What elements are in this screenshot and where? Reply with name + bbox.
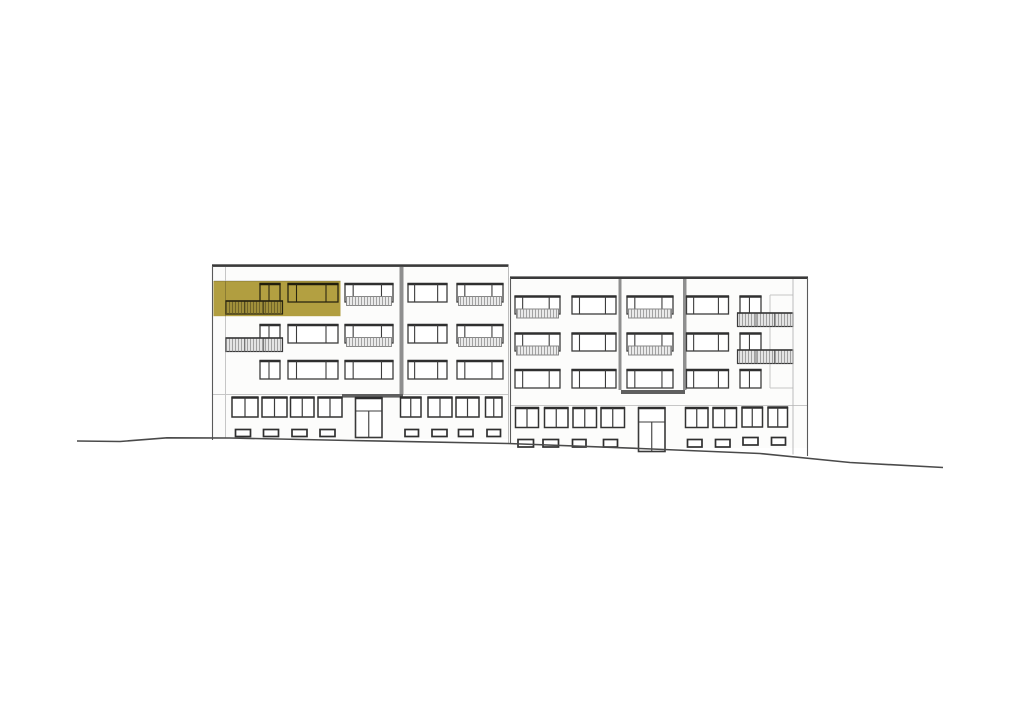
window [456,361,503,379]
stair-core-edge [619,279,622,390]
ground-floor-window [427,398,452,418]
ground-floor-window [455,398,479,418]
window [686,334,729,352]
basement-vent [716,440,731,448]
window [259,361,280,379]
window [514,370,560,388]
balcony [226,338,284,352]
ground-floor-window [400,398,422,418]
roof-line [510,276,808,279]
window [739,334,761,352]
ground-floor-window [261,398,287,418]
balcony-railing [517,309,559,318]
window [686,297,729,315]
window [571,297,616,315]
basement-vent [688,440,703,448]
window [739,297,761,315]
ground-floor-window [485,398,503,418]
balcony-railing [347,338,392,347]
elevation-page [0,0,1024,724]
balcony-railing [629,309,672,318]
window [739,370,761,388]
balcony-railing [459,297,502,306]
ground-floor-window [600,408,625,428]
entrance-canopy [621,390,685,394]
roof-line [212,264,509,267]
highlight-overlay [214,281,341,316]
window [571,334,616,352]
ground-floor-window [572,408,597,428]
balcony-railing [347,297,392,306]
window [686,370,729,388]
window [571,370,616,388]
stair-core-edge [400,267,404,395]
window [287,325,338,343]
window [287,361,338,379]
basement-vent [604,440,618,448]
basement-vent [320,430,335,437]
basement-vent [743,438,758,446]
entrance-door [638,408,666,452]
ground-floor-window [544,408,569,428]
highlight-unit-overlay [214,281,341,316]
basement-vent [459,430,474,437]
basement-vent [487,430,501,437]
window [407,325,447,343]
window [626,370,673,388]
building-elevation-drawing [0,0,1024,724]
ground-floor-window [712,408,737,428]
ground-floor-window [317,398,342,418]
ground-floor-window [685,408,709,428]
basement-vent [264,430,279,437]
window [344,361,393,379]
window [407,284,447,302]
basement-vent [432,430,447,437]
balcony-railing [629,346,672,355]
balcony-railing [459,338,502,347]
balcony-railing [517,346,559,355]
basement-vent [292,430,307,437]
window [407,361,447,379]
balcony [737,313,794,327]
ground-floor-window [290,398,315,418]
basement-vent [405,430,419,437]
ground-floor-window [741,408,763,428]
basement-vent [236,430,251,437]
ground-floor-window [231,398,258,418]
ground-floor-window [515,408,539,428]
basement-vent [772,438,786,446]
balcony [737,350,794,364]
entrance-door [355,398,383,438]
ground-floor-window [767,408,788,428]
